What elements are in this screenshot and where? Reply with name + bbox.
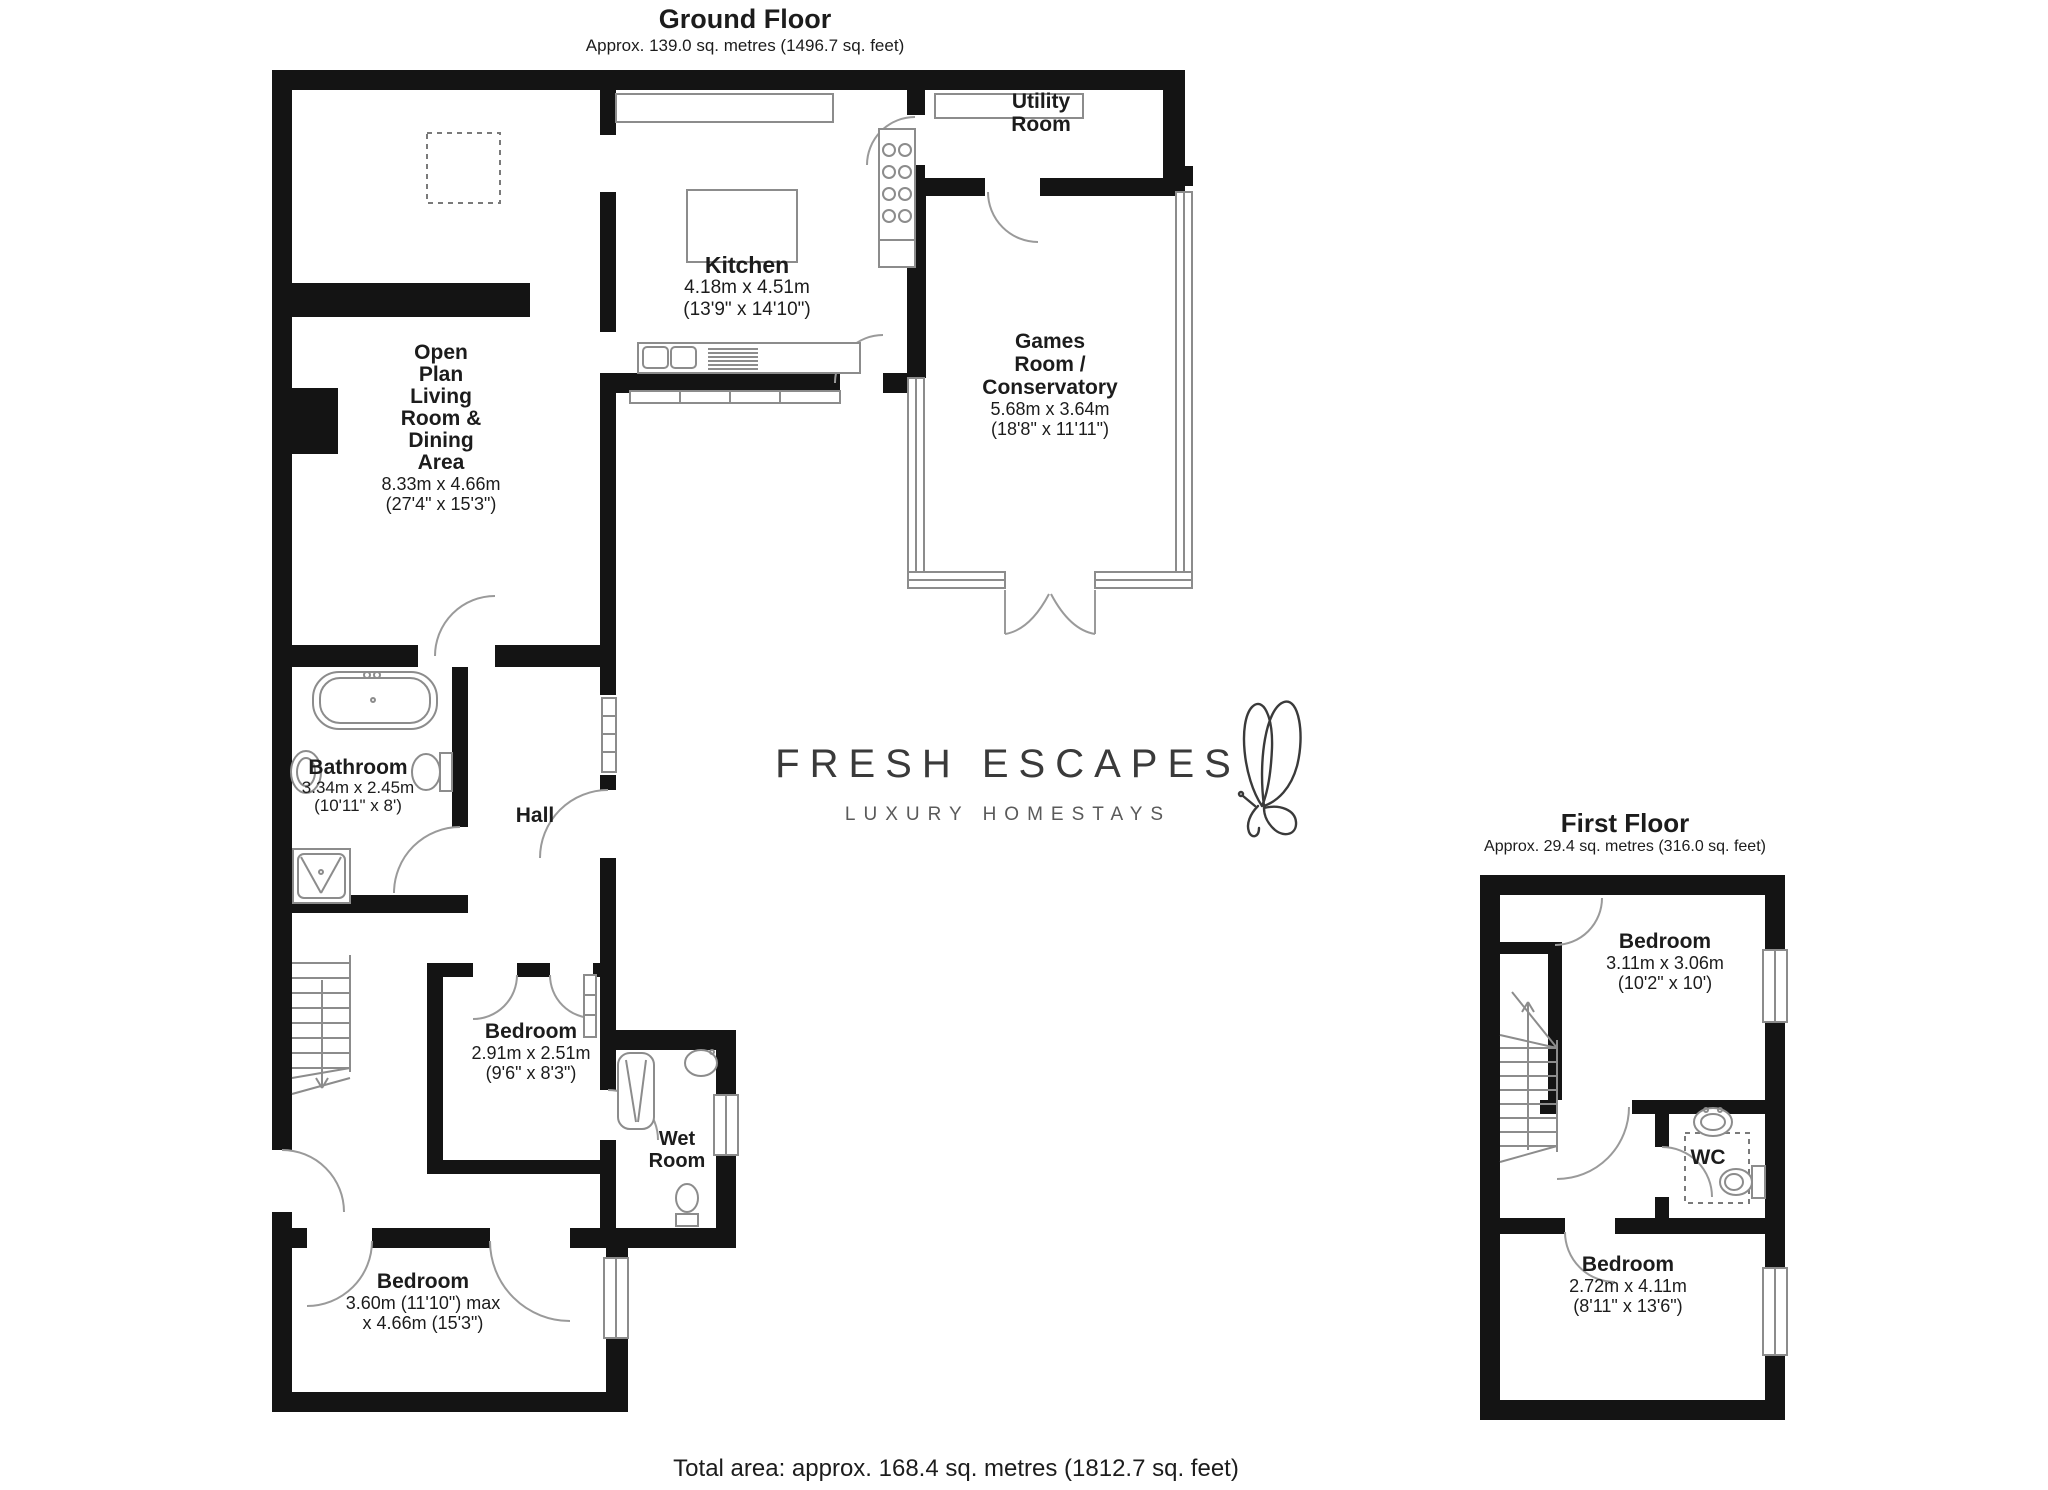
bedroom-small-name: Bedroom bbox=[471, 1020, 590, 1043]
wet-room-name-line: Room bbox=[649, 1150, 706, 1172]
utility-name-line: Utility bbox=[1011, 90, 1071, 113]
shower-icon bbox=[293, 849, 350, 903]
room-label-games-room: Games Room / Conservatory 5.68m x 3.64m … bbox=[982, 330, 1117, 439]
door-arc bbox=[490, 1241, 570, 1321]
door-arc bbox=[1555, 898, 1602, 945]
first-floor-subtitle: Approx. 29.4 sq. metres (316.0 sq. feet) bbox=[1484, 838, 1766, 856]
open-plan-name-line: Open bbox=[381, 342, 500, 364]
kitchen-name: Kitchen bbox=[683, 254, 810, 277]
games-room-name-line: Games bbox=[982, 330, 1117, 353]
bathroom-name: Bathroom bbox=[302, 756, 414, 779]
wet-room-sink-icon bbox=[685, 1050, 717, 1076]
french-doors bbox=[1005, 590, 1095, 634]
ff-bedroom-back-dimensions-metric: 2.72m x 4.11m bbox=[1569, 1276, 1687, 1296]
wet-room-name-line: Wet bbox=[649, 1128, 706, 1150]
door-arc bbox=[282, 1150, 344, 1212]
butterfly-logo-icon bbox=[1239, 702, 1301, 837]
wet-room-shower-icon bbox=[618, 1053, 654, 1129]
bathroom-dimensions-metric: 3.34m x 2.45m bbox=[302, 779, 414, 797]
first-floor-title: First Floor bbox=[1561, 808, 1690, 839]
open-plan-name-line: Dining bbox=[381, 430, 500, 452]
games-room-dimensions-metric: 5.68m x 3.64m bbox=[982, 399, 1117, 419]
floorplan-page: Ground Floor Approx. 139.0 sq. metres (1… bbox=[0, 0, 2048, 1490]
wc-sink-icon bbox=[1694, 1108, 1732, 1136]
ff-bedroom-front-name: Bedroom bbox=[1606, 930, 1724, 953]
ff-bedroom-front-dimensions-metric: 3.11m x 3.06m bbox=[1606, 953, 1724, 973]
bathroom-dimensions-imperial: (10'11" x 8') bbox=[302, 797, 414, 815]
games-room-name-line: Conservatory bbox=[982, 376, 1117, 399]
bedroom-large-name: Bedroom bbox=[346, 1270, 501, 1293]
bedroom-large-dimensions-line1: 3.60m (11'10") max bbox=[346, 1293, 501, 1313]
ff-bedroom-front-dimensions-imperial: (10'2" x 10') bbox=[1606, 973, 1724, 993]
games-room-dimensions-imperial: (18'8" x 11'11") bbox=[982, 419, 1117, 439]
games-room-name-line: Room / bbox=[982, 353, 1117, 376]
hall-name: Hall bbox=[516, 804, 555, 827]
kitchen-counter bbox=[616, 94, 833, 122]
door-arc bbox=[1557, 1107, 1629, 1179]
open-plan-name-line: Plan bbox=[381, 364, 500, 386]
room-label-wet-room: Wet Room bbox=[649, 1128, 706, 1172]
room-label-kitchen: Kitchen 4.18m x 4.51m (13'9" x 14'10") bbox=[683, 254, 810, 321]
utility-name-line: Room bbox=[1011, 113, 1071, 136]
toilet-icon bbox=[412, 753, 452, 791]
open-plan-dimensions-metric: 8.33m x 4.66m bbox=[381, 474, 500, 494]
ground-floor-subtitle: Approx. 139.0 sq. metres (1496.7 sq. fee… bbox=[586, 36, 904, 56]
open-plan-name-line: Room & bbox=[381, 408, 500, 430]
room-label-ff-bedroom-front: Bedroom 3.11m x 3.06m (10'2" x 10') bbox=[1606, 930, 1724, 993]
ground-floor-title: Ground Floor bbox=[659, 4, 831, 35]
open-plan-name-line: Area bbox=[381, 452, 500, 474]
open-plan-name-line: Living bbox=[381, 386, 500, 408]
room-label-bedroom-small: Bedroom 2.91m x 2.51m (9'6" x 8'3") bbox=[471, 1020, 590, 1083]
total-area-text: Total area: approx. 168.4 sq. metres (18… bbox=[673, 1455, 1239, 1483]
ff-bedroom-back-dimensions-imperial: (8'11" x 13'6") bbox=[1569, 1296, 1687, 1316]
bathtub-icon bbox=[313, 672, 437, 729]
brand-tagline: LUXURY HOMESTAYS bbox=[845, 804, 1171, 826]
room-label-hall: Hall bbox=[516, 804, 555, 827]
room-label-utility: Utility Room bbox=[1011, 90, 1071, 136]
cooker-hob-icon bbox=[879, 129, 915, 267]
skylight-outline bbox=[427, 133, 500, 203]
bedroom-small-dimensions-imperial: (9'6" x 8'3") bbox=[471, 1063, 590, 1083]
door-arc bbox=[435, 596, 495, 656]
radiator-icon bbox=[630, 391, 840, 403]
open-plan-dimensions-imperial: (27'4" x 15'3") bbox=[381, 494, 500, 514]
wc-toilet-icon bbox=[1720, 1166, 1765, 1198]
room-label-wc: WC bbox=[1691, 1146, 1726, 1169]
wc-name: WC bbox=[1691, 1146, 1726, 1169]
brand-wordmark: FRESH ESCAPES bbox=[775, 742, 1241, 787]
door-arc bbox=[988, 192, 1038, 242]
radiator-icon bbox=[602, 698, 616, 772]
room-label-bedroom-large: Bedroom 3.60m (11'10") max x 4.66m (15'3… bbox=[346, 1270, 501, 1333]
room-label-ff-bedroom-back: Bedroom 2.72m x 4.11m (8'11" x 13'6") bbox=[1569, 1253, 1687, 1316]
staircase-icon bbox=[292, 955, 350, 1094]
kitchen-sink-icon bbox=[638, 343, 860, 373]
kitchen-dimensions-imperial: (13'9" x 14'10") bbox=[683, 299, 810, 321]
ff-bedroom-back-name: Bedroom bbox=[1569, 1253, 1687, 1276]
bedroom-large-dimensions-line2: x 4.66m (15'3") bbox=[346, 1313, 501, 1333]
door-arc bbox=[473, 975, 517, 1019]
wet-room-toilet-icon bbox=[676, 1184, 698, 1226]
bedroom-small-dimensions-metric: 2.91m x 2.51m bbox=[471, 1043, 590, 1063]
kitchen-dimensions-metric: 4.18m x 4.51m bbox=[683, 277, 810, 299]
room-label-bathroom: Bathroom 3.34m x 2.45m (10'11" x 8') bbox=[302, 756, 414, 815]
room-label-open-plan: Open Plan Living Room & Dining Area 8.33… bbox=[381, 342, 500, 514]
door-arc bbox=[394, 827, 460, 893]
